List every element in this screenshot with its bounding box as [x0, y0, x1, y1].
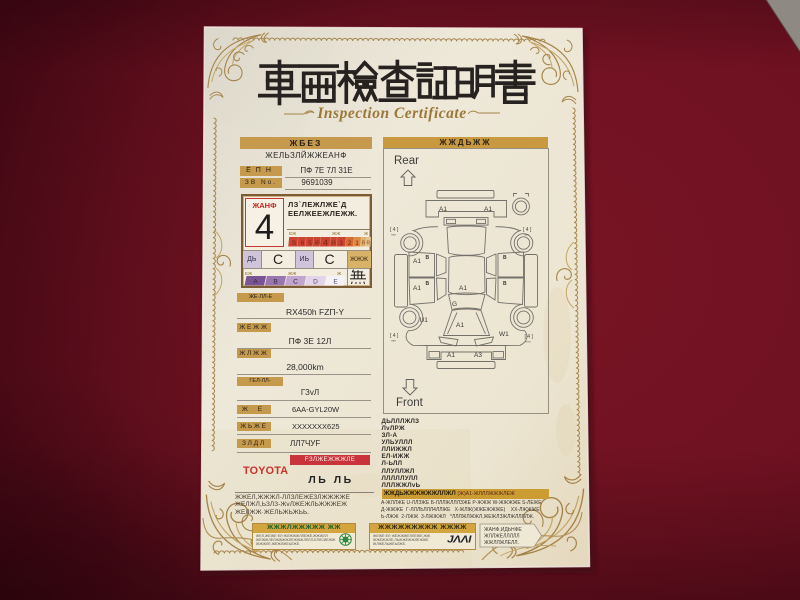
svg-text:5: 5 — [308, 240, 312, 247]
svg-text:A1: A1 — [447, 352, 455, 359]
svg-text:mm: mm — [526, 340, 531, 344]
svg-text:B: B — [426, 281, 430, 287]
svg-text:R: R — [366, 240, 370, 246]
svg-text:6: 6 — [301, 240, 305, 247]
svg-text:2: 2 — [348, 240, 352, 247]
svg-text:D: D — [313, 279, 318, 286]
svg-text:mm: mm — [391, 339, 396, 343]
svg-text:B: B — [273, 279, 277, 286]
svg-text:4: 4 — [323, 237, 328, 247]
svg-text:A1: A1 — [413, 258, 421, 265]
svg-text:A1: A1 — [459, 285, 467, 292]
svg-text:U1: U1 — [420, 317, 429, 324]
svg-text:B: B — [503, 255, 507, 261]
svg-text:3: 3 — [339, 240, 343, 247]
svg-text:W1: W1 — [499, 331, 509, 338]
svg-text:C: C — [293, 279, 298, 286]
svg-text:mm: mm — [391, 233, 396, 237]
svg-text:B: B — [503, 281, 507, 287]
svg-text:35: 35 — [331, 240, 337, 246]
svg-text:A1: A1 — [439, 206, 447, 213]
svg-text:A1: A1 — [456, 322, 464, 329]
svg-text:1: 1 — [355, 240, 359, 247]
svg-text:B: B — [426, 255, 430, 261]
svg-text:ЖАНФ,ИДЬНФЕ: ЖАНФ,ИДЬНФЕ — [484, 527, 522, 533]
svg-text:S: S — [292, 240, 297, 247]
svg-text:G: G — [452, 301, 457, 308]
svg-text:A: A — [253, 279, 258, 286]
svg-text:45: 45 — [314, 240, 320, 246]
svg-text:ЖЛЛЖЕЛЛЛЛЛ: ЖЛЛЖЕЛЛЛЛЛ — [484, 533, 520, 539]
svg-text:A1: A1 — [413, 285, 421, 292]
svg-text:Inspection Certificate: Inspection Certificate — [316, 105, 466, 122]
svg-text:E: E — [333, 279, 338, 286]
svg-text:A3: A3 — [474, 352, 482, 359]
svg-text:mm: mm — [524, 233, 529, 237]
svg-text:A1: A1 — [484, 206, 492, 213]
svg-text:ЖЖЛЛЖЛЕЛЛ.: ЖЖЛЛЖЛЕЛЛ. — [484, 540, 519, 546]
